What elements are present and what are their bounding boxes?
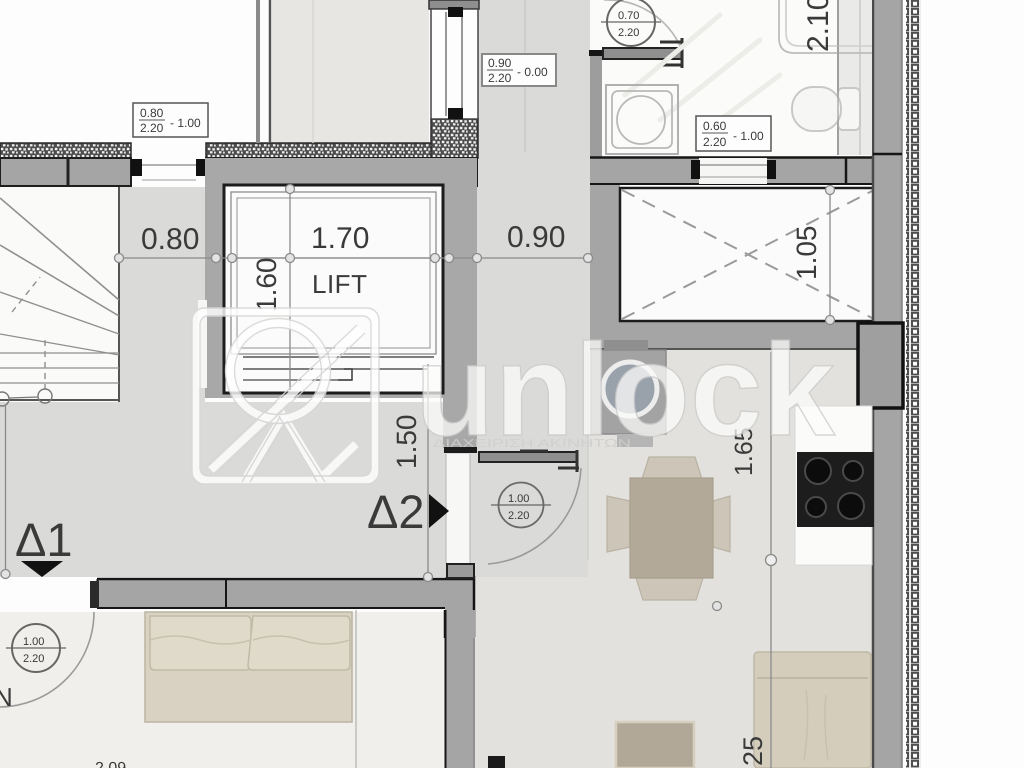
svg-text:1.05: 1.05 <box>791 226 822 281</box>
svg-text:1.70: 1.70 <box>311 222 369 255</box>
svg-text:2.10: 2.10 <box>802 0 835 52</box>
svg-text:0.90: 0.90 <box>488 56 512 70</box>
svg-text:2.20: 2.20 <box>703 135 727 149</box>
svg-text:2.20: 2.20 <box>508 510 529 522</box>
svg-text:0.80: 0.80 <box>141 223 199 256</box>
svg-text:ΔΙΑΧΕΙΡΙΣΗ ΑΚΙΝΗΤΩΝ: ΔΙΑΧΕΙΡΙΣΗ ΑΚΙΝΗΤΩΝ <box>433 438 631 450</box>
svg-text:0.70: 0.70 <box>618 10 639 22</box>
svg-text:2.20: 2.20 <box>488 71 512 85</box>
svg-text:2.09: 2.09 <box>95 760 126 768</box>
svg-text:0.80: 0.80 <box>140 106 164 120</box>
svg-text:- 0.00: - 0.00 <box>517 65 548 79</box>
svg-text:0.60: 0.60 <box>703 119 727 133</box>
svg-text:1.60: 1.60 <box>251 258 282 313</box>
svg-text:0.90: 0.90 <box>507 221 565 254</box>
svg-text:LIFT: LIFT <box>312 269 367 299</box>
svg-text:- 1.00: - 1.00 <box>170 116 201 130</box>
svg-text:2.20: 2.20 <box>618 27 639 39</box>
svg-text:Δ2: Δ2 <box>367 485 425 538</box>
svg-text:2.20: 2.20 <box>23 653 44 665</box>
svg-text:25: 25 <box>738 736 768 766</box>
svg-text:- 1.00: - 1.00 <box>733 129 764 143</box>
svg-text:2.20: 2.20 <box>140 121 164 135</box>
svg-text:Δ1: Δ1 <box>15 513 73 566</box>
svg-text:1.00: 1.00 <box>508 493 529 505</box>
svg-text:N: N <box>0 682 13 712</box>
svg-text:1.00: 1.00 <box>23 636 44 648</box>
